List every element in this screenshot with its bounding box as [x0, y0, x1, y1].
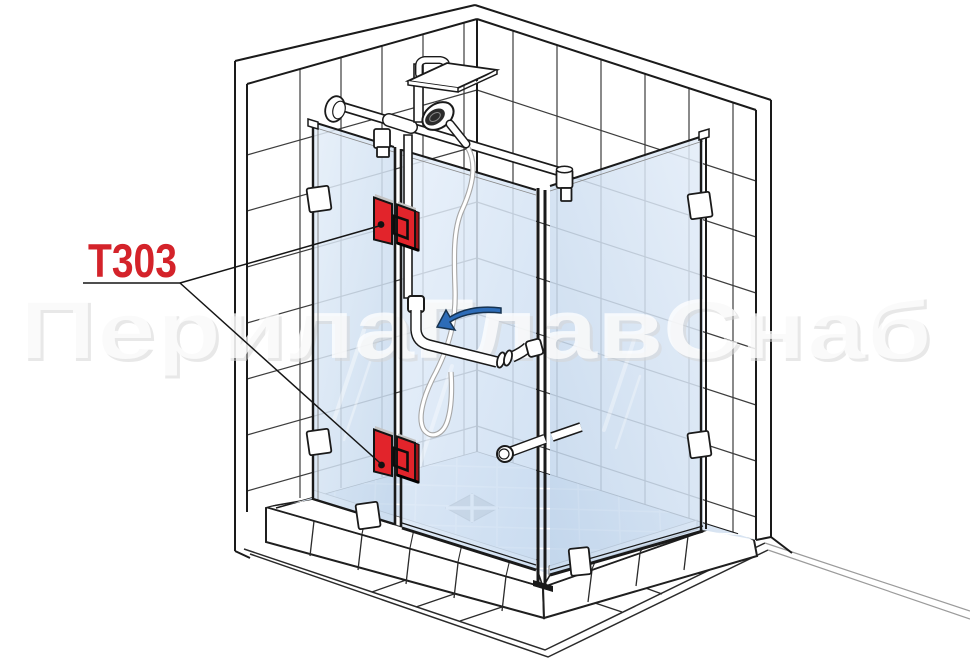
svg-text:Т303: Т303 — [88, 234, 177, 287]
